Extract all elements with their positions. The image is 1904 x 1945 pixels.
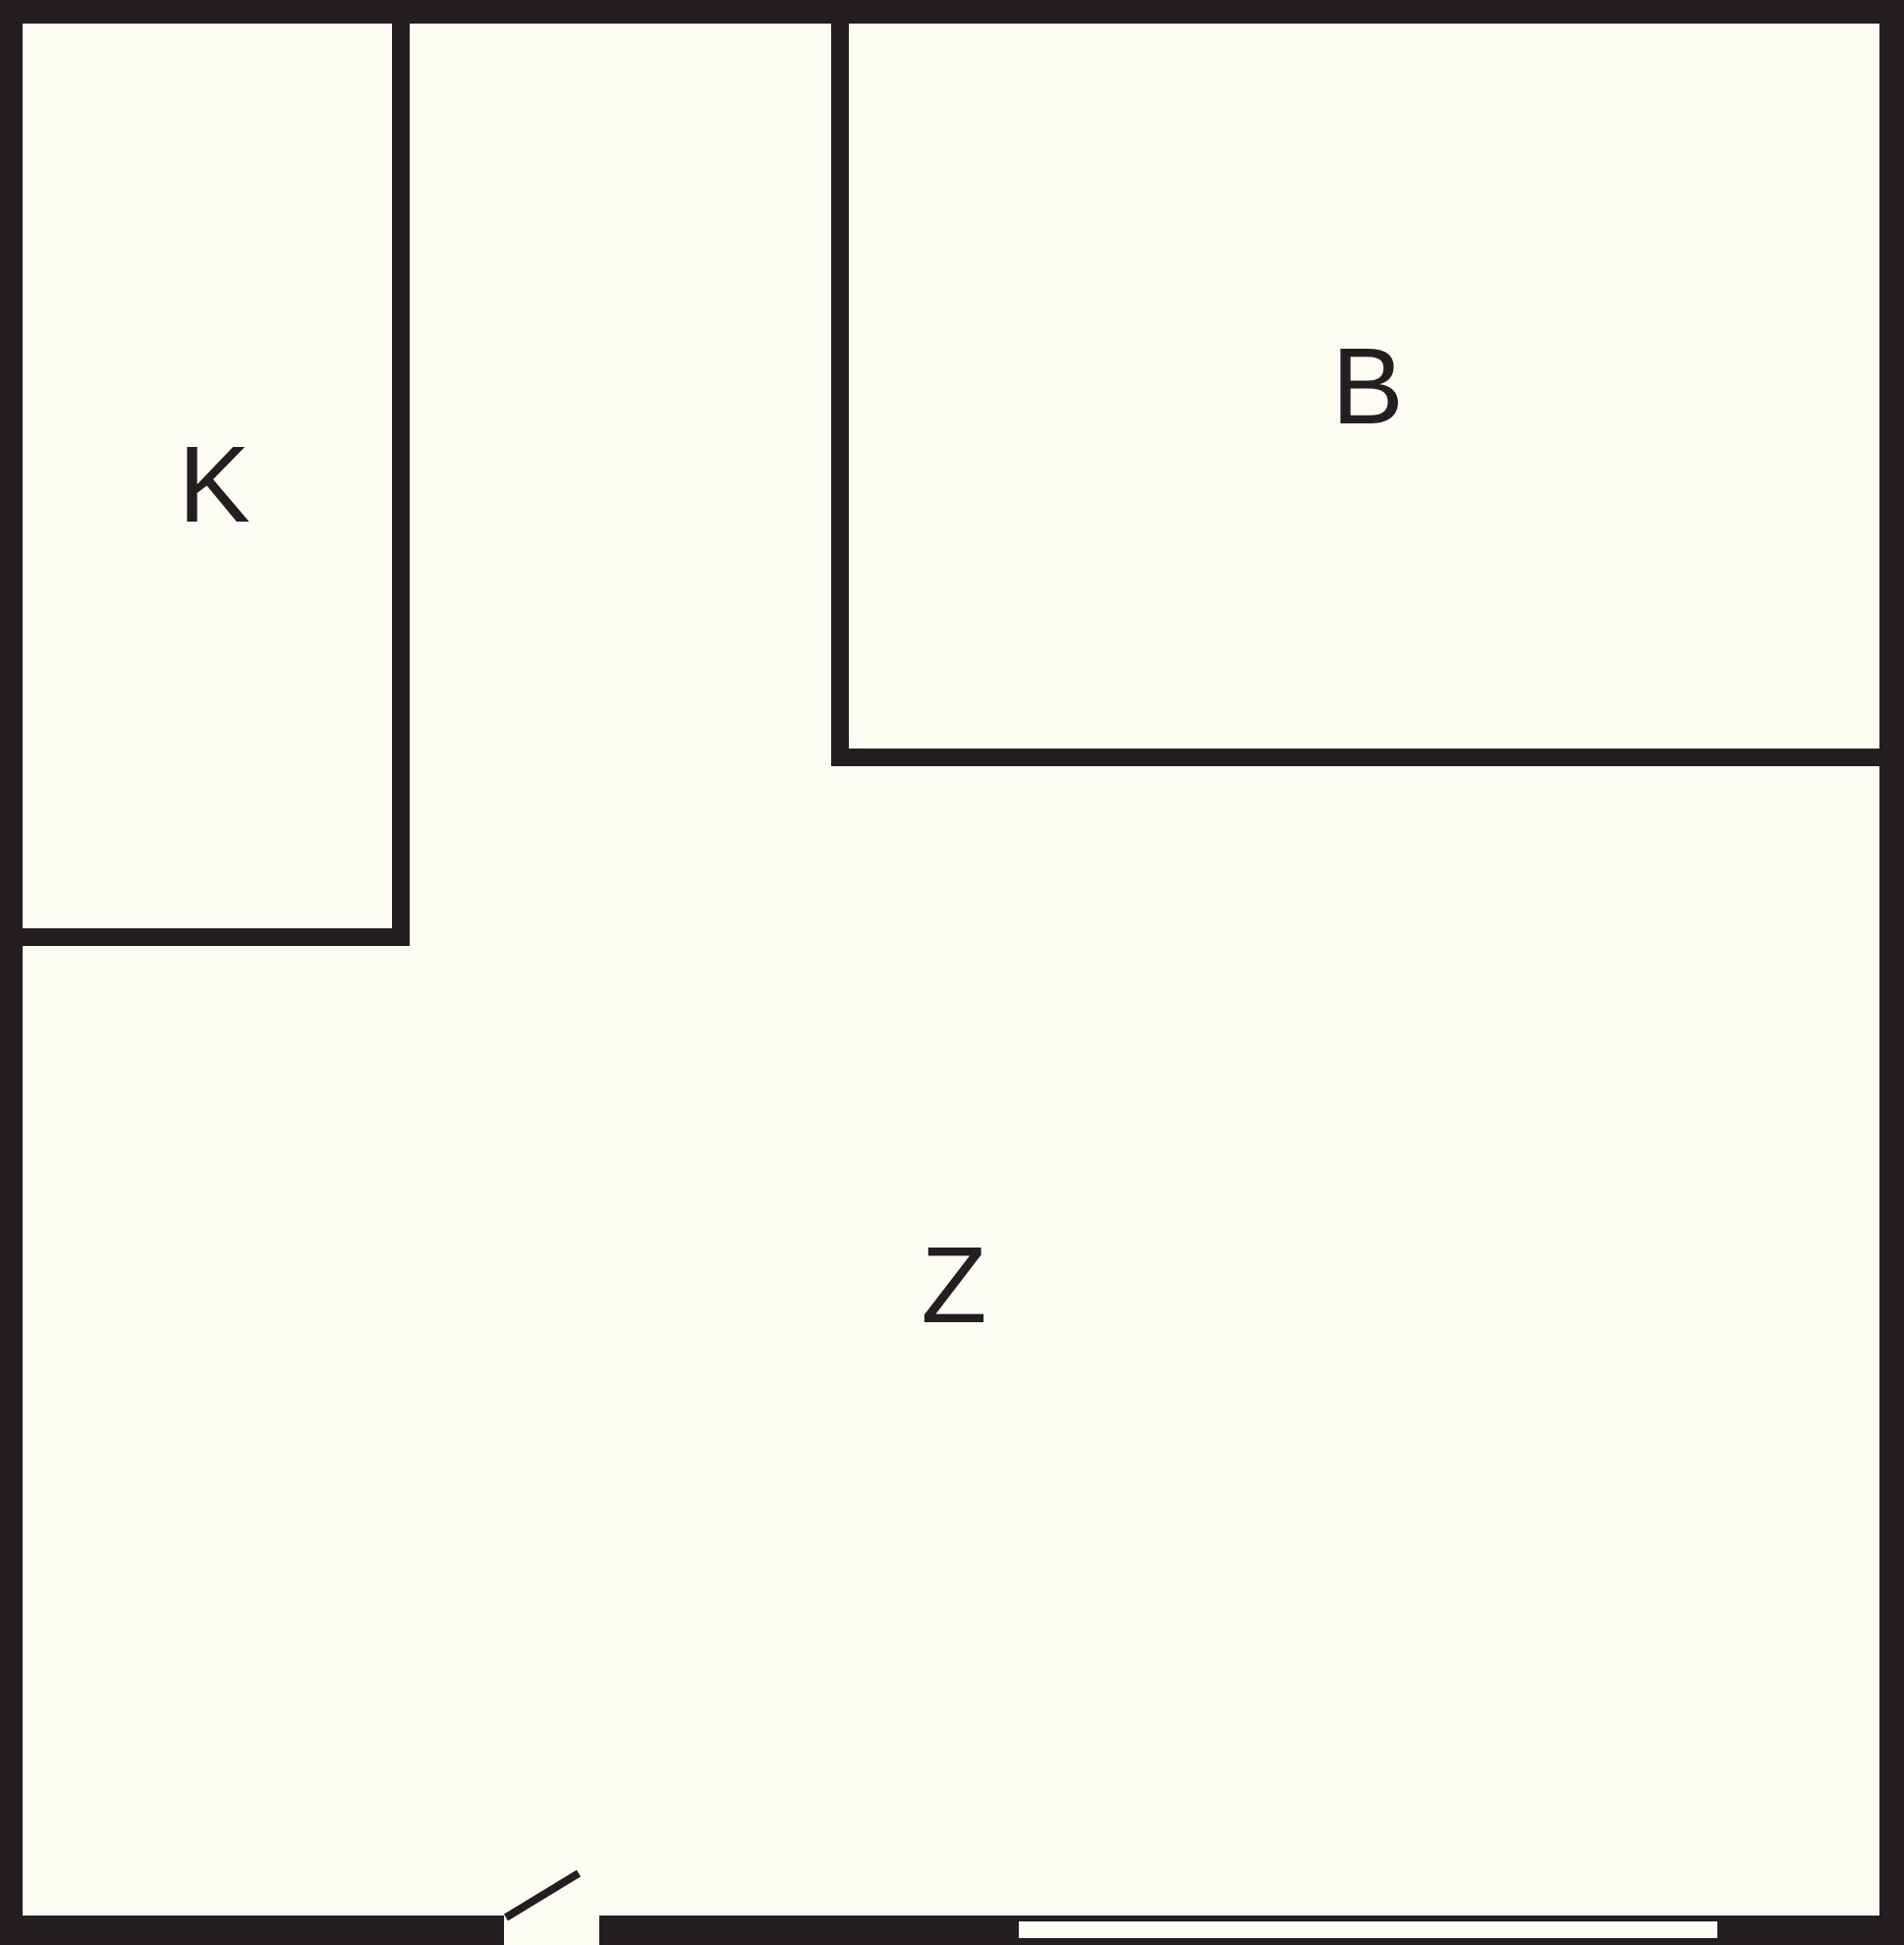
room-b-left-wall [831, 0, 849, 766]
outer-wall-left [0, 0, 23, 1945]
outer-wall-top [0, 0, 1904, 24]
door-swing-icon [486, 1852, 614, 1945]
room-k-bottom-wall [0, 928, 410, 946]
room-b-bottom-wall [831, 749, 1904, 766]
floor-plan: K B Z [0, 0, 1904, 1945]
room-z-label: Z [921, 1232, 986, 1340]
window-icon [1019, 1921, 1717, 1938]
outer-wall-right [1879, 0, 1904, 1945]
room-k-right-wall [392, 0, 410, 946]
room-k-label: K [178, 431, 250, 539]
room-b-label: B [1331, 333, 1403, 441]
